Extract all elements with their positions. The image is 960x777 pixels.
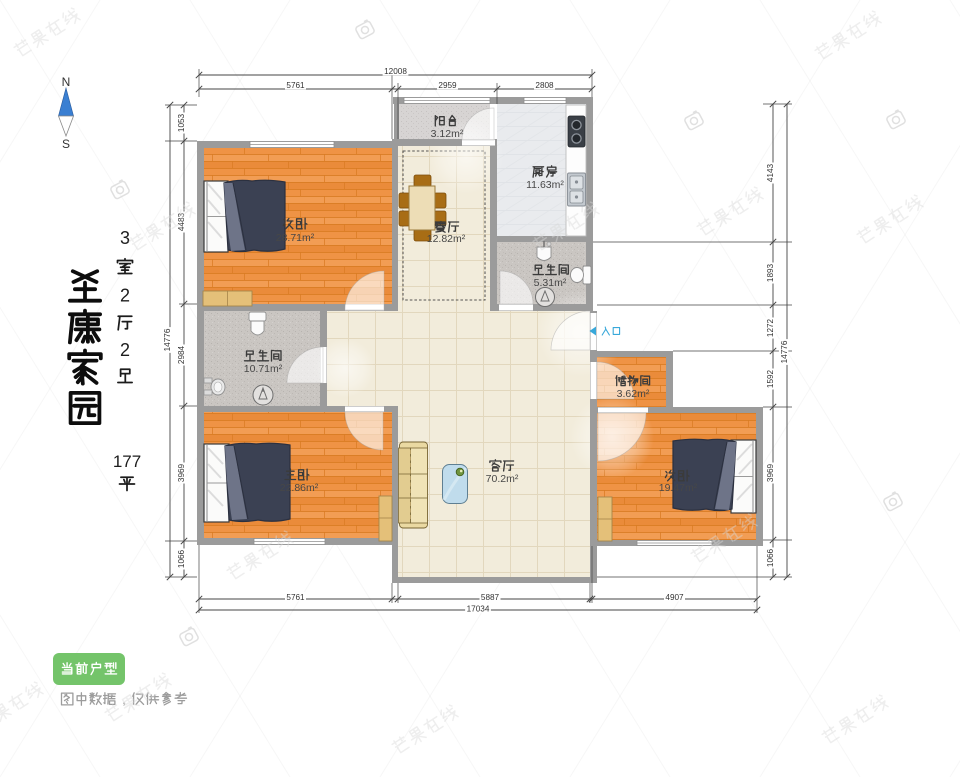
svg-text:1272: 1272: [766, 318, 775, 337]
svg-text:1053: 1053: [177, 113, 186, 132]
svg-text:1066: 1066: [766, 548, 775, 567]
svg-text:5761: 5761: [286, 593, 305, 602]
svg-text:5887: 5887: [481, 593, 500, 602]
svg-text:28.71m²: 28.71m²: [276, 232, 315, 244]
svg-text:70.2m²: 70.2m²: [486, 473, 519, 485]
svg-text:3.12m²: 3.12m²: [431, 128, 464, 140]
svg-text:5.31m²: 5.31m²: [534, 277, 567, 289]
svg-text:1893: 1893: [766, 263, 775, 282]
svg-text:17034: 17034: [467, 604, 490, 613]
svg-text:2: 2: [120, 340, 130, 360]
svg-text:1592: 1592: [766, 369, 775, 388]
svg-text:S: S: [62, 137, 70, 151]
svg-text:12008: 12008: [384, 67, 407, 76]
svg-text:11.63m²: 11.63m²: [526, 179, 564, 191]
svg-text:2984: 2984: [177, 345, 186, 364]
svg-text:19.47m²: 19.47m²: [659, 482, 698, 494]
svg-text:14776: 14776: [163, 328, 172, 351]
svg-text:2: 2: [120, 286, 130, 306]
svg-text:4143: 4143: [766, 163, 775, 182]
svg-text:10.71m²: 10.71m²: [244, 363, 283, 375]
svg-text:3.62m²: 3.62m²: [617, 388, 650, 400]
svg-text:22.86m²: 22.86m²: [280, 482, 319, 494]
svg-text:177: 177: [113, 452, 141, 471]
svg-text:3969: 3969: [177, 463, 186, 482]
svg-text:14776: 14776: [780, 340, 789, 363]
svg-text:12.82m²: 12.82m²: [427, 233, 466, 245]
svg-text:5761: 5761: [286, 81, 305, 90]
svg-text:2959: 2959: [438, 81, 457, 90]
svg-text:2808: 2808: [535, 81, 554, 90]
svg-text:3: 3: [120, 228, 130, 248]
svg-text:4907: 4907: [665, 593, 684, 602]
svg-text:3969: 3969: [766, 463, 775, 482]
svg-text:1066: 1066: [177, 549, 186, 568]
